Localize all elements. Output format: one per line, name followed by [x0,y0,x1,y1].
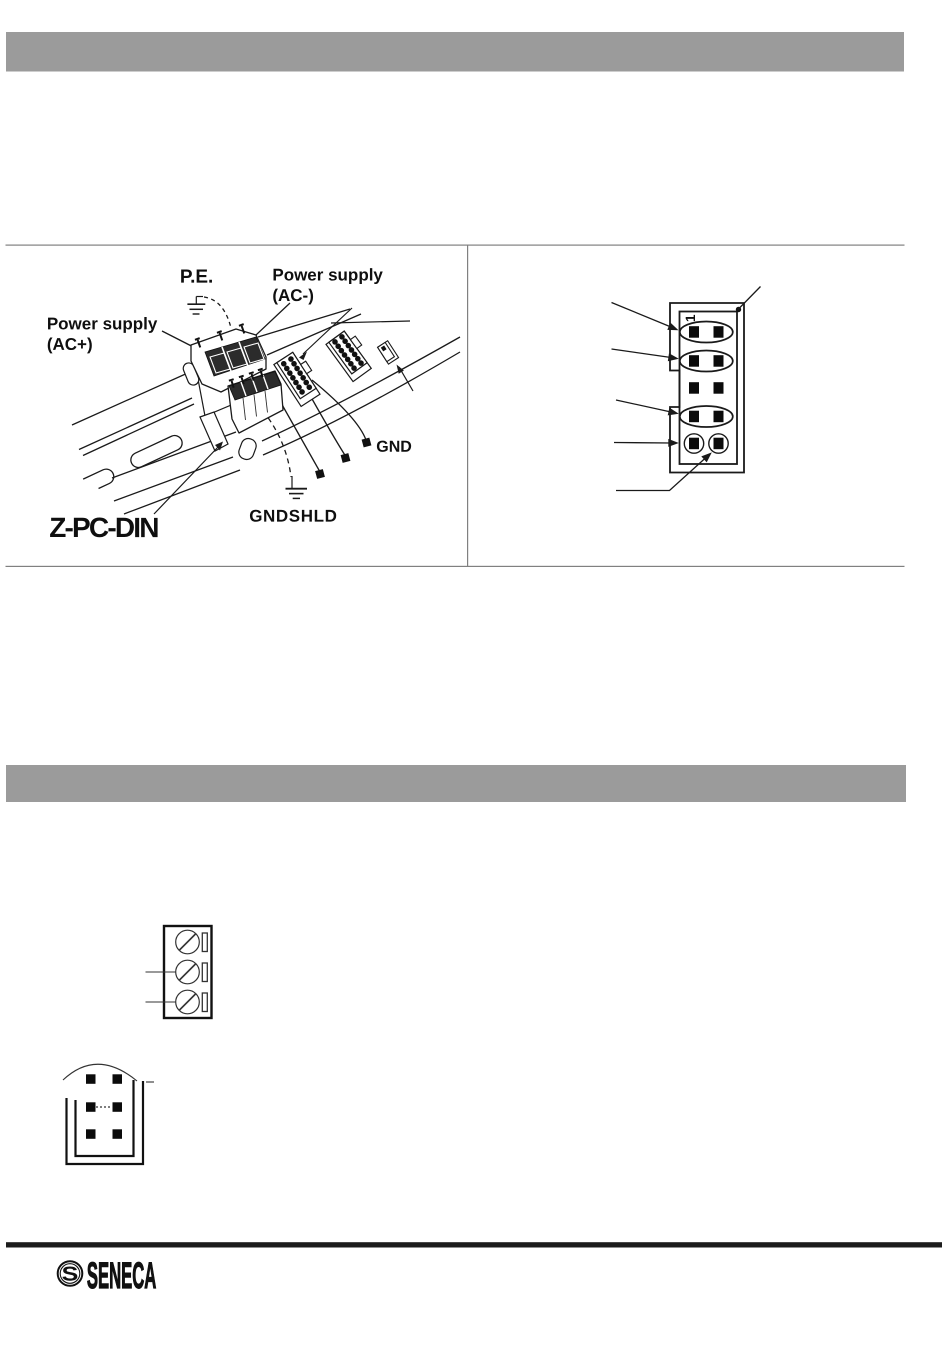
svg-text:P.E.: P.E. [180,267,213,288]
svg-text:1: 1 [683,314,698,322]
svg-text:Power supply: Power supply [47,314,158,333]
svg-text:Z-PC-DIN: Z-PC-DIN [49,512,158,543]
svg-text:GND: GND [376,439,412,456]
svg-text:GNDSHLD: GNDSHLD [249,507,337,526]
svg-text:(AC-): (AC-) [272,286,314,305]
svg-text:SENECA: SENECA [87,1255,157,1296]
svg-text:Power supply: Power supply [272,265,383,284]
svg-text:(AC+): (AC+) [47,335,93,354]
svg-text:S: S [62,1264,79,1286]
